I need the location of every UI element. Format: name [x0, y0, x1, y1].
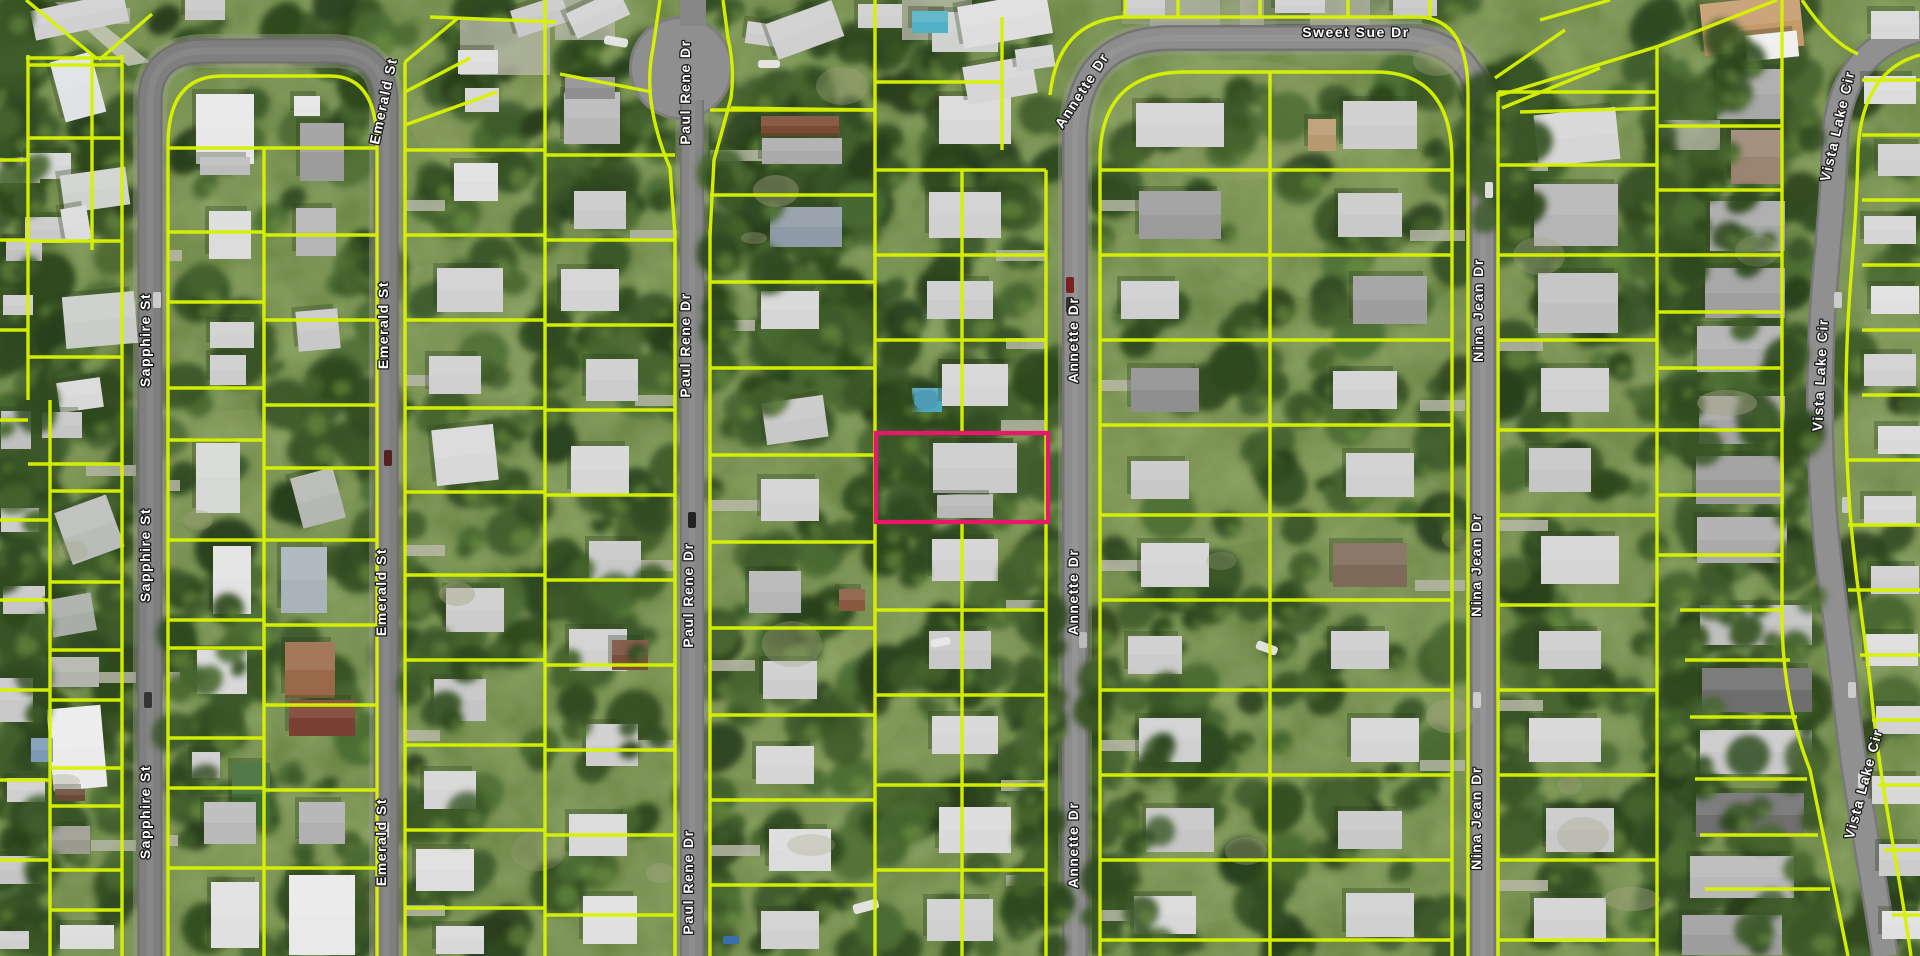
svg-text:Annette Dr: Annette Dr	[1065, 297, 1081, 384]
svg-text:Nina Jean Dr: Nina Jean Dr	[1468, 513, 1484, 617]
svg-text:Paul Rene Dr: Paul Rene Dr	[677, 292, 693, 397]
svg-text:Sapphire St: Sapphire St	[137, 765, 153, 859]
svg-text:Annette Dr: Annette Dr	[1065, 549, 1081, 636]
svg-text:Paul Rene Dr: Paul Rene Dr	[680, 829, 696, 934]
svg-text:Annette Dr: Annette Dr	[1065, 802, 1081, 889]
svg-text:Emerald St: Emerald St	[375, 281, 391, 369]
svg-text:Nina Jean Dr: Nina Jean Dr	[1470, 258, 1486, 362]
svg-text:Sapphire St: Sapphire St	[137, 293, 153, 387]
svg-text:Sweet Sue Dr: Sweet Sue Dr	[1302, 24, 1409, 40]
svg-text:Paul Rene Dr: Paul Rene Dr	[677, 39, 693, 144]
svg-text:Paul Rene Dr: Paul Rene Dr	[680, 542, 696, 647]
svg-text:Nina Jean Dr: Nina Jean Dr	[1468, 766, 1484, 870]
svg-text:Emerald St: Emerald St	[373, 798, 389, 886]
svg-text:Sapphire St: Sapphire St	[137, 508, 153, 602]
svg-text:Emerald St: Emerald St	[373, 548, 389, 636]
